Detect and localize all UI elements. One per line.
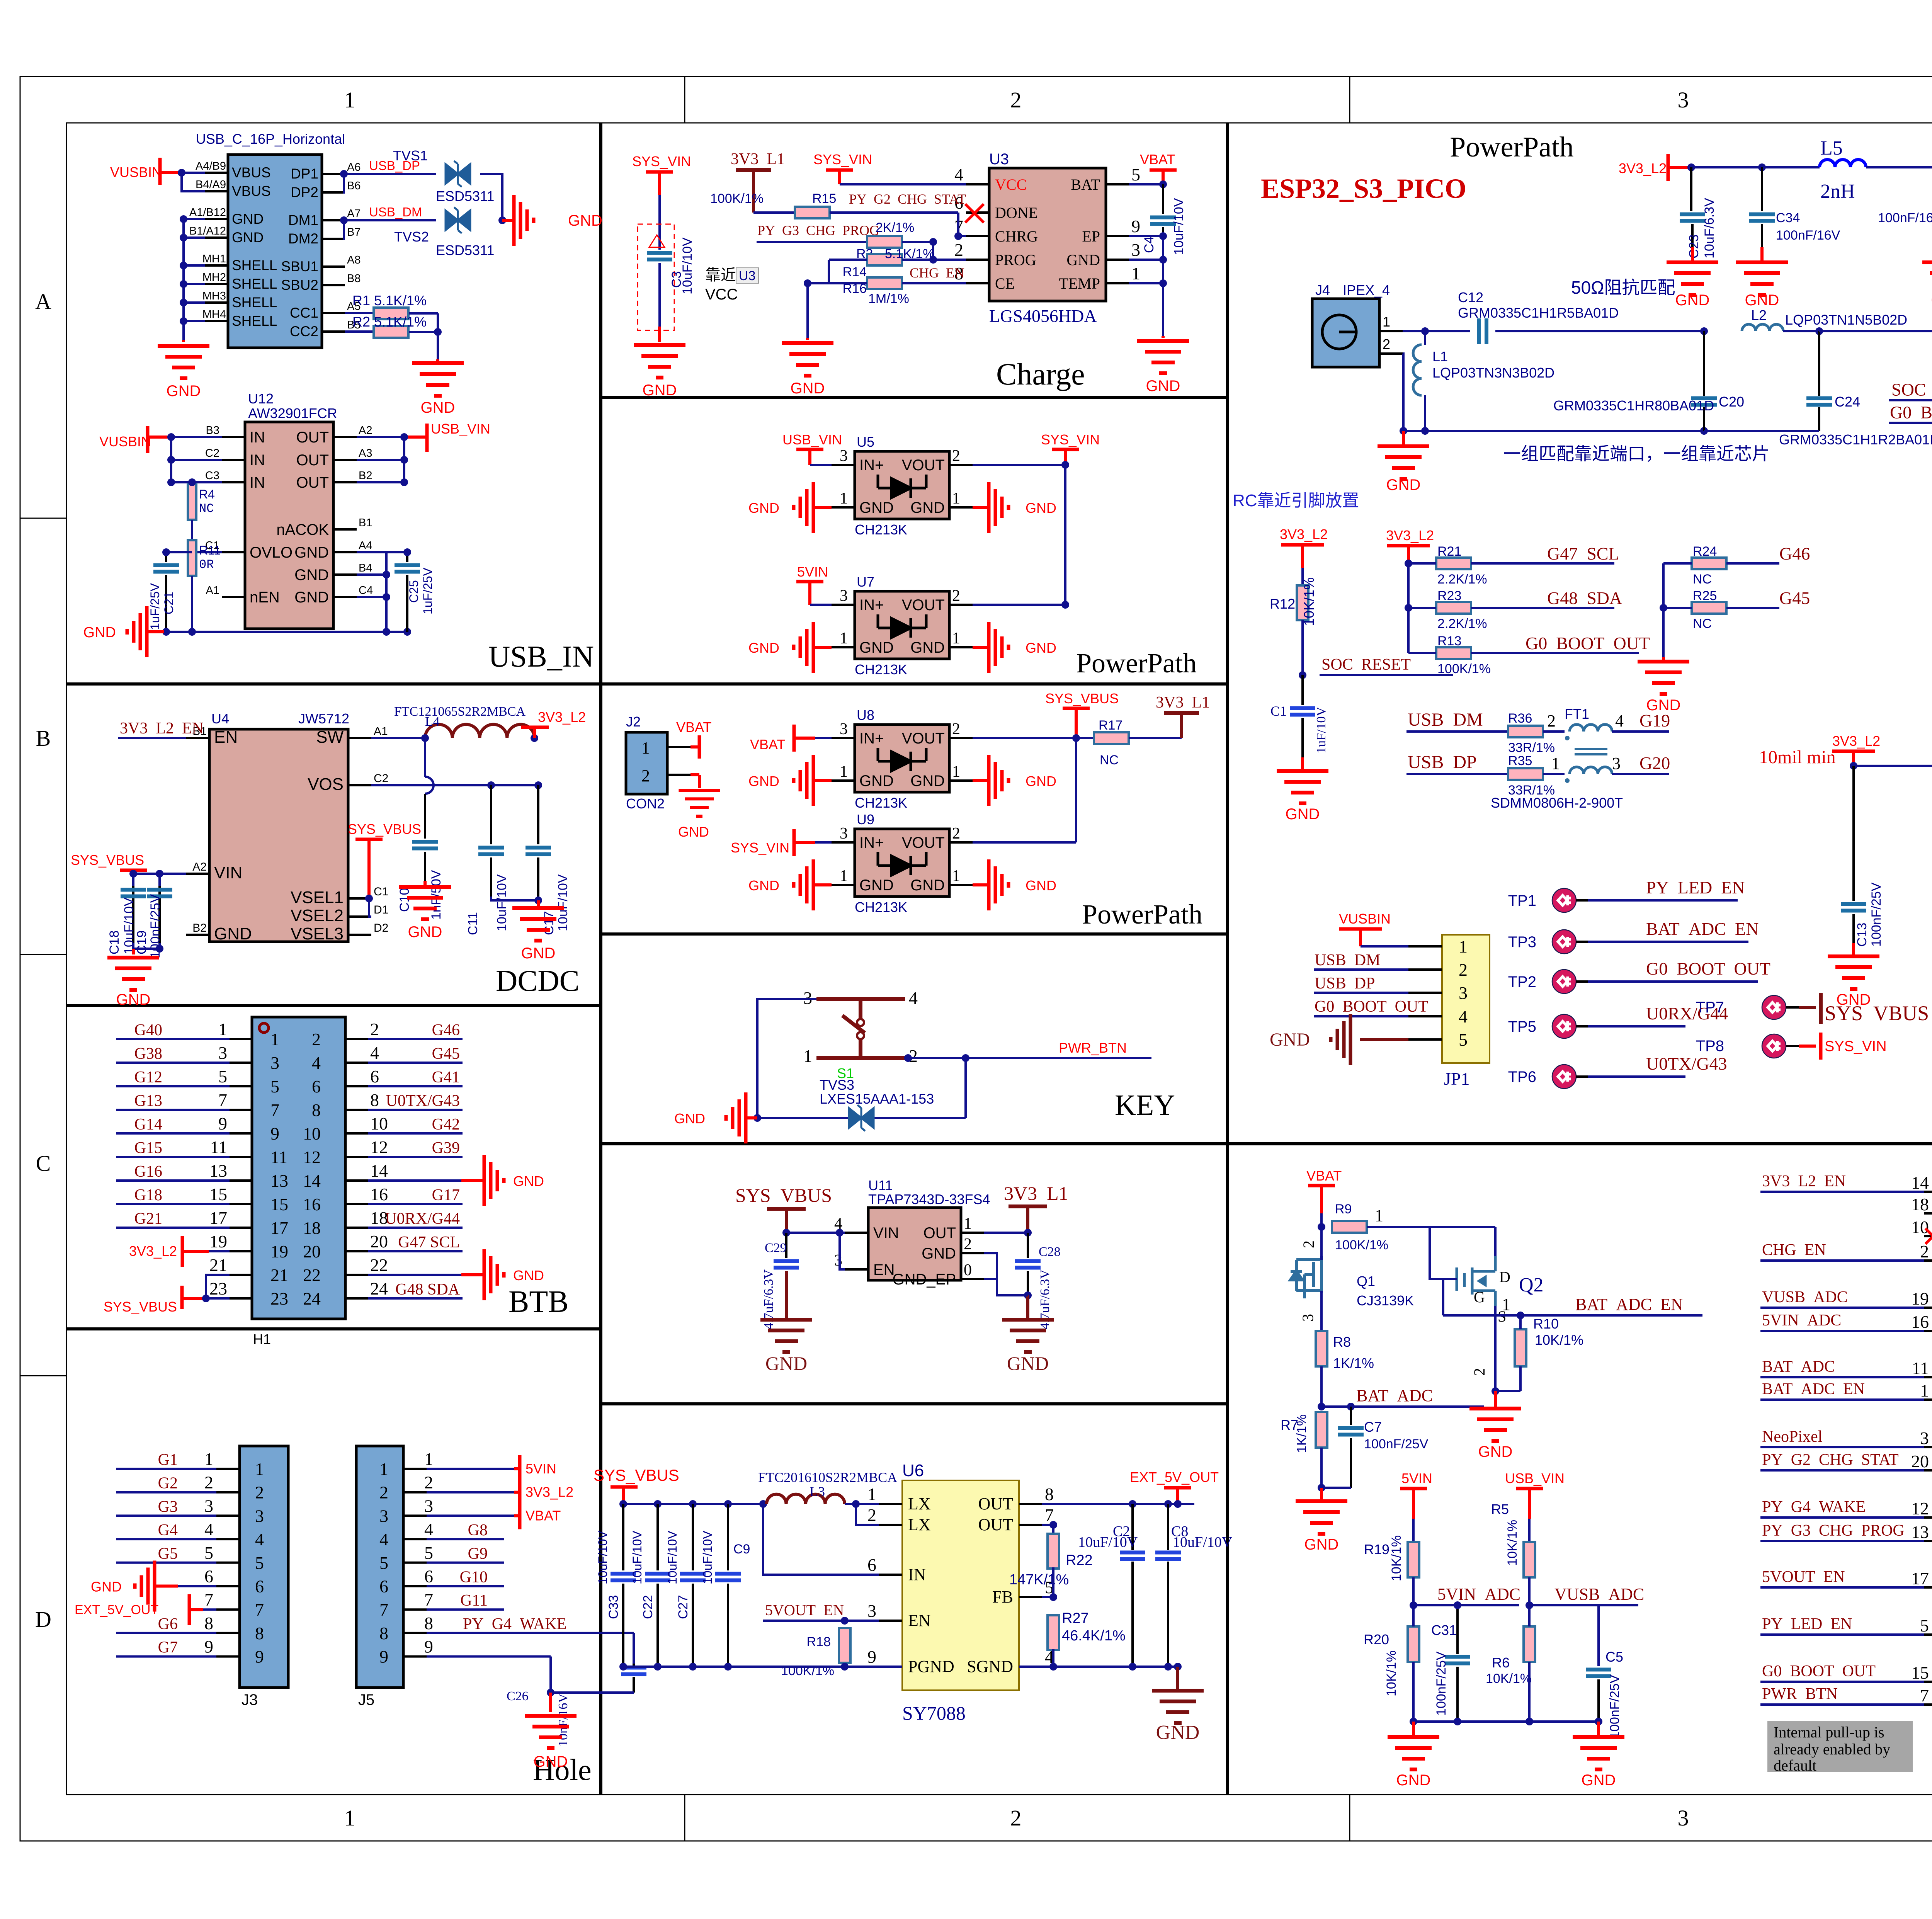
svg-text:G1: G1 <box>158 1451 178 1469</box>
svg-text:LGS4056HDA: LGS4056HDA <box>989 306 1097 326</box>
svg-text:A1: A1 <box>374 725 388 738</box>
svg-text:G47 SCL: G47 SCL <box>1547 544 1619 563</box>
svg-text:G4: G4 <box>158 1521 178 1539</box>
svg-text:17: 17 <box>270 1218 288 1238</box>
svg-text:一组匹配靠近端口，一组靠近芯片: 一组匹配靠近端口，一组靠近芯片 <box>1503 444 1770 464</box>
svg-text:GND: GND <box>1026 773 1056 789</box>
svg-text:1: 1 <box>952 629 960 647</box>
svg-text:GND: GND <box>859 499 894 516</box>
svg-text:U5: U5 <box>857 434 874 450</box>
svg-text:L3: L3 <box>810 1484 825 1499</box>
svg-text:5VIN: 5VIN <box>526 1461 556 1477</box>
svg-text:3V3 L2 EN: 3V3 L2 EN <box>1762 1172 1846 1190</box>
svg-text:G0 BOOT OUT: G0 BOOT OUT <box>1315 998 1428 1016</box>
svg-text:10uF/10V: 10uF/10V <box>680 237 695 294</box>
svg-text:2: 2 <box>1547 711 1556 730</box>
svg-text:EXT_5V_OUT: EXT_5V_OUT <box>75 1603 158 1617</box>
svg-text:C5: C5 <box>1605 1649 1623 1665</box>
svg-text:G0 BOOT OUT: G0 BOOT OUT <box>1890 403 1932 422</box>
svg-text:G15: G15 <box>134 1139 162 1157</box>
svg-text:VCC: VCC <box>705 286 738 303</box>
svg-text:2: 2 <box>954 240 963 260</box>
svg-text:R8: R8 <box>1333 1334 1351 1350</box>
svg-text:nEN: nEN <box>250 589 280 606</box>
svg-text:A8: A8 <box>347 254 361 266</box>
svg-text:1: 1 <box>379 1459 388 1479</box>
svg-text:NC: NC <box>1100 753 1119 767</box>
svg-text:10uF/10V: 10uF/10V <box>1172 198 1186 255</box>
svg-text:14: 14 <box>1911 1173 1929 1193</box>
svg-text:100nF/25V: 100nF/25V <box>1869 882 1884 947</box>
svg-text:5: 5 <box>1920 1616 1929 1635</box>
svg-text:1uF/10V: 1uF/10V <box>1314 707 1328 754</box>
svg-text:SOC RESET: SOC RESET <box>1891 379 1932 399</box>
svg-text:17: 17 <box>1911 1569 1929 1588</box>
svg-text:100nF/25V: 100nF/25V <box>1607 1674 1622 1739</box>
svg-text:GND: GND <box>534 1753 568 1770</box>
svg-text:GND: GND <box>765 1352 807 1374</box>
svg-text:VSEL1: VSEL1 <box>291 888 344 907</box>
svg-text:3V3_L2: 3V3_L2 <box>129 1243 177 1259</box>
svg-text:IN+: IN+ <box>859 834 884 851</box>
svg-text:Q2: Q2 <box>1519 1274 1544 1296</box>
svg-text:10uF/10V: 10uF/10V <box>630 1531 644 1584</box>
svg-text:B6: B6 <box>347 180 361 192</box>
svg-text:GND: GND <box>643 382 677 399</box>
svg-text:J4: J4 <box>1315 282 1330 298</box>
svg-text:SHELL: SHELL <box>232 313 277 329</box>
svg-text:nACOK: nACOK <box>276 521 329 538</box>
svg-text:9: 9 <box>255 1647 264 1667</box>
svg-text:U3: U3 <box>989 151 1009 168</box>
svg-text:GND: GND <box>83 624 116 641</box>
svg-text:IN: IN <box>250 452 265 469</box>
svg-text:3: 3 <box>840 447 848 465</box>
svg-text:24: 24 <box>370 1279 388 1298</box>
svg-text:1: 1 <box>952 490 960 507</box>
svg-text:46.4K/1%: 46.4K/1% <box>1062 1628 1126 1644</box>
svg-text:14: 14 <box>303 1171 321 1191</box>
svg-text:GND: GND <box>678 824 709 840</box>
svg-text:GND: GND <box>910 499 945 516</box>
svg-text:IN+: IN+ <box>859 597 884 614</box>
svg-text:G7: G7 <box>158 1639 178 1657</box>
svg-text:GRM0335C1H1R2BA01D: GRM0335C1H1R2BA01D <box>1779 432 1932 447</box>
svg-text:7: 7 <box>424 1590 433 1609</box>
svg-text:VCC: VCC <box>995 176 1027 193</box>
svg-text:1: 1 <box>964 1215 972 1233</box>
svg-text:G39: G39 <box>432 1139 460 1157</box>
svg-text:9: 9 <box>424 1637 433 1657</box>
svg-text:100nF/16V: 100nF/16V <box>1776 228 1840 243</box>
svg-text:VBAT: VBAT <box>1306 1168 1342 1184</box>
svg-text:33R/1%: 33R/1% <box>1508 740 1555 755</box>
svg-text:10: 10 <box>303 1124 321 1143</box>
svg-text:C22: C22 <box>641 1595 655 1619</box>
svg-text:BAT ADC EN: BAT ADC EN <box>1646 919 1759 939</box>
svg-text:VSEL2: VSEL2 <box>291 906 344 925</box>
svg-text:GND: GND <box>294 544 329 561</box>
svg-text:1: 1 <box>867 1484 876 1504</box>
svg-text:USB_C_16P_Horizontal: USB_C_16P_Horizontal <box>196 131 345 147</box>
svg-text:G45: G45 <box>1779 588 1810 608</box>
svg-text:7: 7 <box>204 1590 213 1609</box>
svg-text:3: 3 <box>270 1053 279 1073</box>
svg-text:1: 1 <box>1502 1295 1510 1314</box>
svg-text:G5: G5 <box>158 1545 178 1563</box>
svg-text:GRM0335C1HR80BA01D: GRM0335C1HR80BA01D <box>1553 398 1714 413</box>
svg-text:EXT_5V_OUT: EXT_5V_OUT <box>1130 1469 1219 1485</box>
svg-text:10: 10 <box>1911 1217 1929 1237</box>
svg-text:GND: GND <box>748 773 779 789</box>
svg-text:GND: GND <box>1582 1772 1616 1789</box>
svg-text:R23: R23 <box>1437 589 1461 603</box>
svg-text:CC2: CC2 <box>290 323 318 339</box>
svg-text:23: 23 <box>270 1289 288 1308</box>
svg-text:2.2K/1%: 2.2K/1% <box>1437 572 1487 587</box>
svg-text:C21: C21 <box>162 592 176 614</box>
svg-text:VOS: VOS <box>308 775 344 794</box>
svg-text:VBAT: VBAT <box>1140 151 1175 167</box>
svg-text:TVS1: TVS1 <box>393 148 428 163</box>
svg-text:R21: R21 <box>1437 544 1461 559</box>
svg-text:VUSBIN: VUSBIN <box>99 434 151 449</box>
svg-text:C1: C1 <box>374 885 388 898</box>
svg-text:G18: G18 <box>134 1186 162 1204</box>
svg-text:EN: EN <box>908 1611 931 1630</box>
svg-text:D: D <box>1499 1268 1510 1286</box>
svg-text:2: 2 <box>952 447 960 465</box>
svg-text:IN: IN <box>250 429 265 446</box>
svg-text:OUT: OUT <box>978 1494 1014 1513</box>
svg-text:9: 9 <box>1131 216 1140 236</box>
svg-text:AW32901FCR: AW32901FCR <box>248 405 337 421</box>
svg-text:100K/1%: 100K/1% <box>1335 1238 1388 1252</box>
svg-text:GND: GND <box>1026 878 1056 893</box>
svg-text:22: 22 <box>303 1265 321 1285</box>
svg-text:20: 20 <box>370 1232 388 1251</box>
svg-text:G10: G10 <box>460 1569 488 1586</box>
svg-text:2K/1%: 2K/1% <box>876 220 914 235</box>
svg-text:J5: J5 <box>358 1691 374 1708</box>
svg-text:7: 7 <box>218 1090 227 1110</box>
svg-text:C33: C33 <box>606 1595 621 1619</box>
svg-text:A2: A2 <box>359 424 372 437</box>
svg-text:IN: IN <box>908 1565 926 1584</box>
svg-text:13: 13 <box>270 1171 288 1191</box>
svg-text:R18: R18 <box>807 1635 831 1649</box>
svg-text:R25: R25 <box>1693 589 1717 603</box>
svg-text:PY G3 CHG PROG: PY G3 CHG PROG <box>757 223 879 238</box>
svg-text:5: 5 <box>1459 1030 1468 1050</box>
svg-text:9: 9 <box>379 1647 388 1667</box>
svg-text:1: 1 <box>1920 1381 1929 1400</box>
svg-text:100nF/25V: 100nF/25V <box>1434 1651 1449 1716</box>
svg-text:GND: GND <box>167 383 201 400</box>
svg-text:1: 1 <box>424 1449 433 1469</box>
svg-text:TVS2: TVS2 <box>394 229 429 245</box>
svg-text:VUSB ADC: VUSB ADC <box>1554 1585 1644 1604</box>
svg-text:SYS_VBUS: SYS_VBUS <box>594 1466 679 1484</box>
svg-text:7: 7 <box>1920 1686 1929 1705</box>
svg-text:G46: G46 <box>432 1021 460 1039</box>
svg-text:U6: U6 <box>902 1461 924 1480</box>
svg-text:C4: C4 <box>1142 236 1156 253</box>
svg-text:H1: H1 <box>253 1331 271 1347</box>
svg-text:2: 2 <box>1459 960 1468 980</box>
svg-text:USB_VIN: USB_VIN <box>431 421 490 437</box>
svg-text:SYS_VIN: SYS_VIN <box>813 151 872 167</box>
svg-text:GND: GND <box>922 1245 956 1262</box>
svg-text:VUSB ADC: VUSB ADC <box>1762 1288 1848 1306</box>
svg-text:2: 2 <box>952 825 960 842</box>
svg-text:GND: GND <box>1270 1029 1310 1050</box>
svg-text:14: 14 <box>370 1161 388 1181</box>
svg-text:CC1: CC1 <box>290 305 318 321</box>
svg-text:USB_IN: USB_IN <box>488 640 594 673</box>
svg-text:A1: A1 <box>206 584 219 597</box>
svg-text:6: 6 <box>255 1577 264 1596</box>
svg-text:SYS VBUS: SYS VBUS <box>735 1184 832 1206</box>
svg-text:8: 8 <box>312 1100 321 1120</box>
svg-text:50Ω阻抗匹配: 50Ω阻抗匹配 <box>1571 277 1675 298</box>
svg-text:L5: L5 <box>1820 137 1843 159</box>
svg-text:G16: G16 <box>134 1163 162 1181</box>
svg-text:10mil min: 10mil min <box>1759 747 1836 767</box>
svg-text:18: 18 <box>1911 1194 1929 1214</box>
svg-text:BAT: BAT <box>1071 176 1100 193</box>
svg-text:1: 1 <box>840 490 848 507</box>
svg-text:U9: U9 <box>857 811 874 827</box>
svg-text:A2: A2 <box>192 861 207 873</box>
svg-text:3: 3 <box>1459 983 1468 1003</box>
svg-text:U3: U3 <box>739 269 755 283</box>
svg-text:VBAT: VBAT <box>676 719 711 735</box>
svg-text:U8: U8 <box>857 707 874 723</box>
svg-text:R11: R11 <box>199 543 221 557</box>
svg-text:A7: A7 <box>347 208 361 220</box>
svg-text:GND: GND <box>748 500 779 516</box>
svg-text:20: 20 <box>303 1242 321 1261</box>
svg-text:TP3: TP3 <box>1508 934 1536 951</box>
svg-text:U12: U12 <box>248 391 274 407</box>
svg-text:2: 2 <box>641 766 650 785</box>
svg-text:1: 1 <box>1551 754 1560 773</box>
svg-text:BTB: BTB <box>509 1285 569 1319</box>
svg-text:VIN: VIN <box>214 863 242 882</box>
svg-text:C20: C20 <box>1719 394 1744 410</box>
svg-text:3: 3 <box>840 587 848 605</box>
svg-text:1: 1 <box>1131 264 1140 283</box>
svg-text:USB DM: USB DM <box>1408 709 1483 730</box>
svg-text:EN: EN <box>214 728 238 747</box>
svg-text:CE: CE <box>995 275 1015 292</box>
svg-text:5VIN: 5VIN <box>797 564 828 580</box>
svg-text:10uF/6.3V: 10uF/6.3V <box>1702 198 1717 259</box>
svg-text:PY G3 CHG PROG: PY G3 CHG PROG <box>1762 1522 1905 1540</box>
svg-text:1K/1%: 1K/1% <box>1333 1355 1374 1371</box>
svg-text:GND: GND <box>521 945 556 962</box>
svg-text:LXES15AAA1-153: LXES15AAA1-153 <box>820 1091 934 1107</box>
svg-text:4: 4 <box>379 1529 388 1549</box>
svg-text:1M/1%: 1M/1% <box>868 291 909 306</box>
svg-text:2: 2 <box>255 1483 264 1502</box>
svg-text:B4: B4 <box>359 562 372 574</box>
svg-text:OVLO: OVLO <box>250 544 293 561</box>
svg-text:C34: C34 <box>1776 211 1800 225</box>
svg-text:U7: U7 <box>857 574 874 590</box>
svg-text:1: 1 <box>952 867 960 885</box>
svg-text:LQP03TN1N5B02D: LQP03TN1N5B02D <box>1785 312 1907 328</box>
svg-text:G48 SDA: G48 SDA <box>395 1281 460 1298</box>
svg-text:100K/1%: 100K/1% <box>710 191 764 206</box>
svg-text:CH213K: CH213K <box>855 662 907 677</box>
svg-text:23: 23 <box>209 1279 227 1298</box>
svg-text:C28: C28 <box>1039 1245 1061 1259</box>
svg-text:1: 1 <box>840 867 848 885</box>
svg-text:18: 18 <box>303 1218 321 1238</box>
svg-text:GND: GND <box>91 1579 122 1595</box>
svg-text:VOUT: VOUT <box>902 597 945 614</box>
svg-text:U0TX/G43: U0TX/G43 <box>386 1092 460 1110</box>
svg-text:PY G2 CHG STAT: PY G2 CHG STAT <box>1762 1451 1899 1469</box>
svg-text:G11: G11 <box>460 1592 488 1609</box>
svg-text:0: 0 <box>964 1261 972 1279</box>
svg-text:8: 8 <box>204 1613 213 1633</box>
svg-text:GND: GND <box>910 639 945 656</box>
svg-text:L1: L1 <box>1432 349 1448 364</box>
svg-text:5VIN: 5VIN <box>1401 1470 1432 1486</box>
svg-text:5: 5 <box>424 1543 433 1563</box>
svg-text:C24: C24 <box>1835 394 1860 410</box>
svg-text:VOUT: VOUT <box>902 730 945 747</box>
svg-text:3: 3 <box>204 1496 213 1516</box>
svg-text:GND: GND <box>859 772 894 789</box>
svg-text:6: 6 <box>370 1067 379 1086</box>
svg-text:3: 3 <box>424 1496 433 1516</box>
svg-text:16: 16 <box>370 1184 388 1204</box>
svg-text:11: 11 <box>270 1147 287 1167</box>
svg-text:J2: J2 <box>626 714 641 730</box>
svg-text:SYS_VBUS: SYS_VBUS <box>348 821 421 837</box>
svg-text:1: 1 <box>840 629 848 647</box>
svg-text:LX: LX <box>908 1515 931 1534</box>
svg-text:B8: B8 <box>347 272 361 285</box>
svg-text:TP2: TP2 <box>1508 973 1536 990</box>
svg-text:3: 3 <box>1920 1428 1929 1448</box>
svg-text:OUT: OUT <box>923 1225 956 1242</box>
svg-text:GND: GND <box>791 380 825 397</box>
svg-text:17: 17 <box>209 1208 227 1228</box>
svg-text:TP6: TP6 <box>1508 1068 1536 1085</box>
svg-text:6: 6 <box>204 1567 213 1586</box>
svg-text:SYS_VBUS: SYS_VBUS <box>71 852 144 868</box>
svg-text:10uF/10V: 10uF/10V <box>556 874 570 931</box>
svg-text:4: 4 <box>1615 711 1624 730</box>
svg-text:3V3_L2: 3V3_L2 <box>1832 733 1880 749</box>
svg-text:8: 8 <box>370 1090 379 1110</box>
svg-text:G3: G3 <box>158 1498 178 1516</box>
svg-text:1: 1 <box>270 1029 279 1049</box>
svg-text:GND: GND <box>1386 476 1421 493</box>
svg-text:DCDC: DCDC <box>496 964 580 997</box>
svg-text:13: 13 <box>209 1161 227 1181</box>
svg-text:1: 1 <box>1383 314 1390 330</box>
svg-text:SHELL: SHELL <box>232 294 277 310</box>
svg-text:GND: GND <box>1026 500 1056 516</box>
svg-text:15: 15 <box>1911 1663 1929 1683</box>
svg-text:C2: C2 <box>374 772 388 785</box>
svg-text:GND: GND <box>1286 806 1320 823</box>
svg-text:SYS_VBUS: SYS_VBUS <box>104 1299 177 1315</box>
svg-text:D: D <box>35 1607 51 1632</box>
svg-text:5: 5 <box>270 1077 279 1096</box>
svg-text:SYS_VIN: SYS_VIN <box>731 840 789 856</box>
svg-text:5VIN ADC: 5VIN ADC <box>1762 1312 1841 1329</box>
svg-text:3: 3 <box>1612 754 1621 773</box>
svg-text:5: 5 <box>379 1553 388 1573</box>
svg-text:PowerPath: PowerPath <box>1450 131 1574 163</box>
svg-text:OUT: OUT <box>296 452 329 469</box>
svg-text:B2: B2 <box>192 922 207 934</box>
svg-text:8: 8 <box>255 1623 264 1643</box>
svg-text:2: 2 <box>964 1235 972 1253</box>
svg-text:GND: GND <box>513 1173 544 1189</box>
svg-text:2.2K/1%: 2.2K/1% <box>1437 616 1487 631</box>
svg-text:6: 6 <box>312 1077 321 1096</box>
svg-text:R19: R19 <box>1364 1541 1389 1557</box>
svg-text:SDMM0806H-2-900T: SDMM0806H-2-900T <box>1491 795 1623 811</box>
svg-text:GND: GND <box>910 877 945 894</box>
svg-text:BAT ADC EN: BAT ADC EN <box>1575 1295 1683 1314</box>
svg-text:G45: G45 <box>432 1045 460 1063</box>
svg-text:0R: 0R <box>199 558 214 572</box>
svg-text:1: 1 <box>204 1449 213 1469</box>
svg-text:GND: GND <box>232 230 264 245</box>
svg-text:OUT: OUT <box>978 1515 1014 1534</box>
svg-text:10uF/10V: 10uF/10V <box>1173 1534 1233 1550</box>
svg-text:IPEX_4: IPEX_4 <box>1343 282 1390 298</box>
svg-text:A4/B9: A4/B9 <box>196 160 226 172</box>
svg-text:PY LED EN: PY LED EN <box>1646 878 1745 897</box>
svg-text:10K/1%: 10K/1% <box>1505 1520 1520 1566</box>
svg-text:G0 BOOT OUT: G0 BOOT OUT <box>1526 633 1650 653</box>
svg-text:19: 19 <box>270 1242 288 1261</box>
svg-text:R22: R22 <box>1066 1552 1093 1569</box>
svg-text:10uF/10V: 10uF/10V <box>596 1531 610 1584</box>
svg-text:C7: C7 <box>1364 1419 1382 1435</box>
svg-text:B4/A9: B4/A9 <box>196 179 226 191</box>
svg-text:R2: R2 <box>352 314 370 330</box>
svg-text:GND: GND <box>859 639 894 656</box>
svg-text:15: 15 <box>270 1194 288 1214</box>
svg-text:8: 8 <box>1045 1484 1054 1504</box>
svg-text:IN+: IN+ <box>859 730 884 747</box>
svg-text:4: 4 <box>312 1053 321 1073</box>
svg-text:GND: GND <box>1304 1536 1339 1553</box>
svg-text:GND: GND <box>1007 1352 1049 1374</box>
svg-text:LQP03TN3N3B02D: LQP03TN3N3B02D <box>1432 365 1554 381</box>
svg-text:USB DP: USB DP <box>1315 975 1375 992</box>
svg-text:3V3_L2: 3V3_L2 <box>1619 160 1667 176</box>
svg-text:G41: G41 <box>432 1068 460 1086</box>
svg-text:100nF/25V: 100nF/25V <box>1364 1437 1429 1451</box>
svg-text:3: 3 <box>255 1506 264 1526</box>
svg-text:4: 4 <box>954 165 963 184</box>
svg-text:DP2: DP2 <box>291 184 318 200</box>
svg-text:D2: D2 <box>374 922 388 934</box>
svg-text:VSEL3: VSEL3 <box>291 924 344 943</box>
